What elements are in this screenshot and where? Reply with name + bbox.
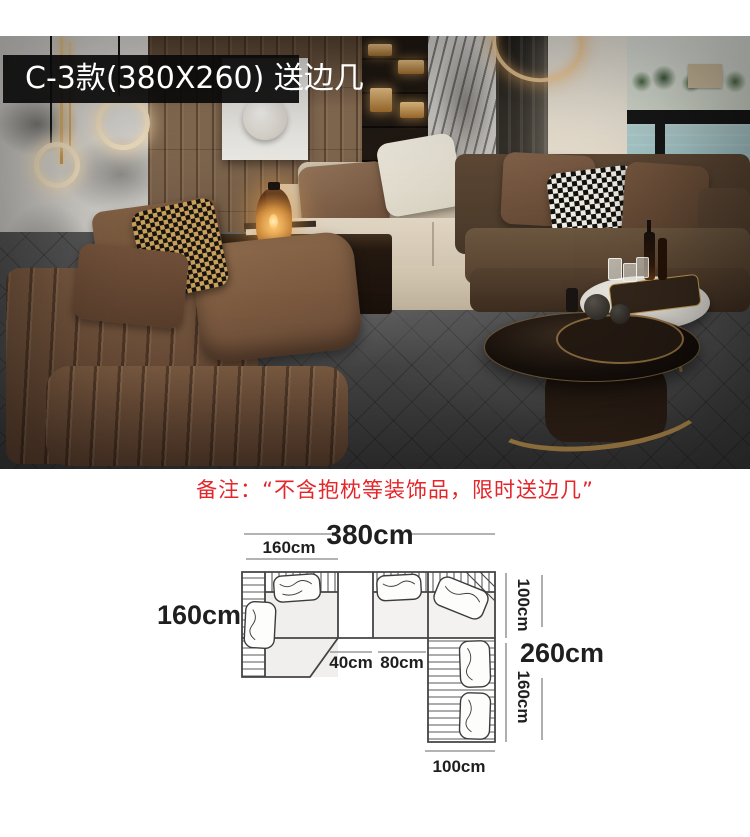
dimension-diagram: 380cm 160cm 160cm 100cm 260cm 160cm 40cm… [150,505,620,805]
plan-pillow-2 [244,601,276,649]
dim-left-side-depth: 160cm [157,600,241,630]
dim-right-lower-length: 160cm [514,671,533,724]
plan-pillow-5 [459,640,491,687]
dim-total-width: 380cm [326,519,413,550]
model-badge: C-3款(380X260) 送边几 [3,55,299,103]
dim-middle-seat-width: 80cm [380,653,423,672]
plan-pillow-3 [376,574,421,601]
dim-right-section-width: 100cm [433,757,486,776]
dim-right-upper-depth: 100cm [514,579,533,632]
chaise-seat-fill [265,592,338,677]
plan-pillow-6 [459,692,491,739]
model-badge-label: C-3款(380X260) 送边几 [25,61,364,96]
product-image: C-3款(380X260) 送边几 备注：“不含抱枕等装饰品，限时送边几” [0,0,750,837]
plan-pillow-1 [273,573,321,602]
dim-right-total-depth: 260cm [520,638,604,668]
dim-corner-table-width: 40cm [329,653,372,672]
note-line: 备注：“不含抱枕等装饰品，限时送边几” [20,474,750,504]
dim-left-chaise-width: 160cm [263,538,316,557]
